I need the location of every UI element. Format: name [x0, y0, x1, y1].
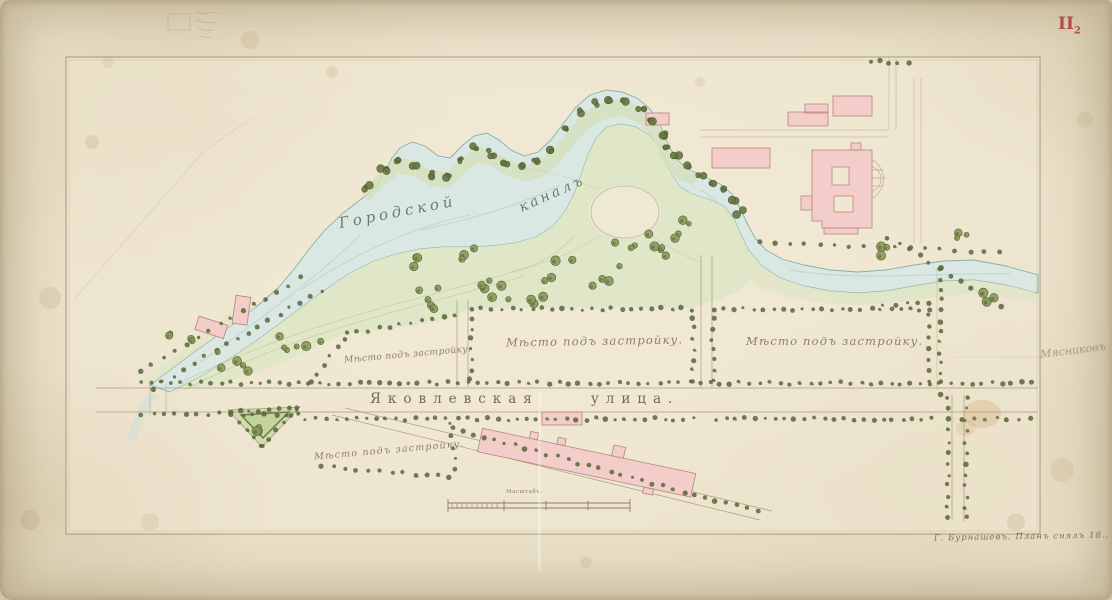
building	[833, 96, 872, 116]
scanned-map-sheet: Городской каналъ Яковлевская улица. Мѣст…	[0, 0, 1112, 600]
building-estate-main	[812, 150, 872, 228]
building-annex	[801, 196, 812, 210]
map-drawing	[0, 0, 1112, 600]
building	[712, 148, 770, 168]
building-annex	[824, 228, 858, 234]
paper-fold-line	[538, 392, 541, 570]
building-annex	[851, 143, 861, 150]
